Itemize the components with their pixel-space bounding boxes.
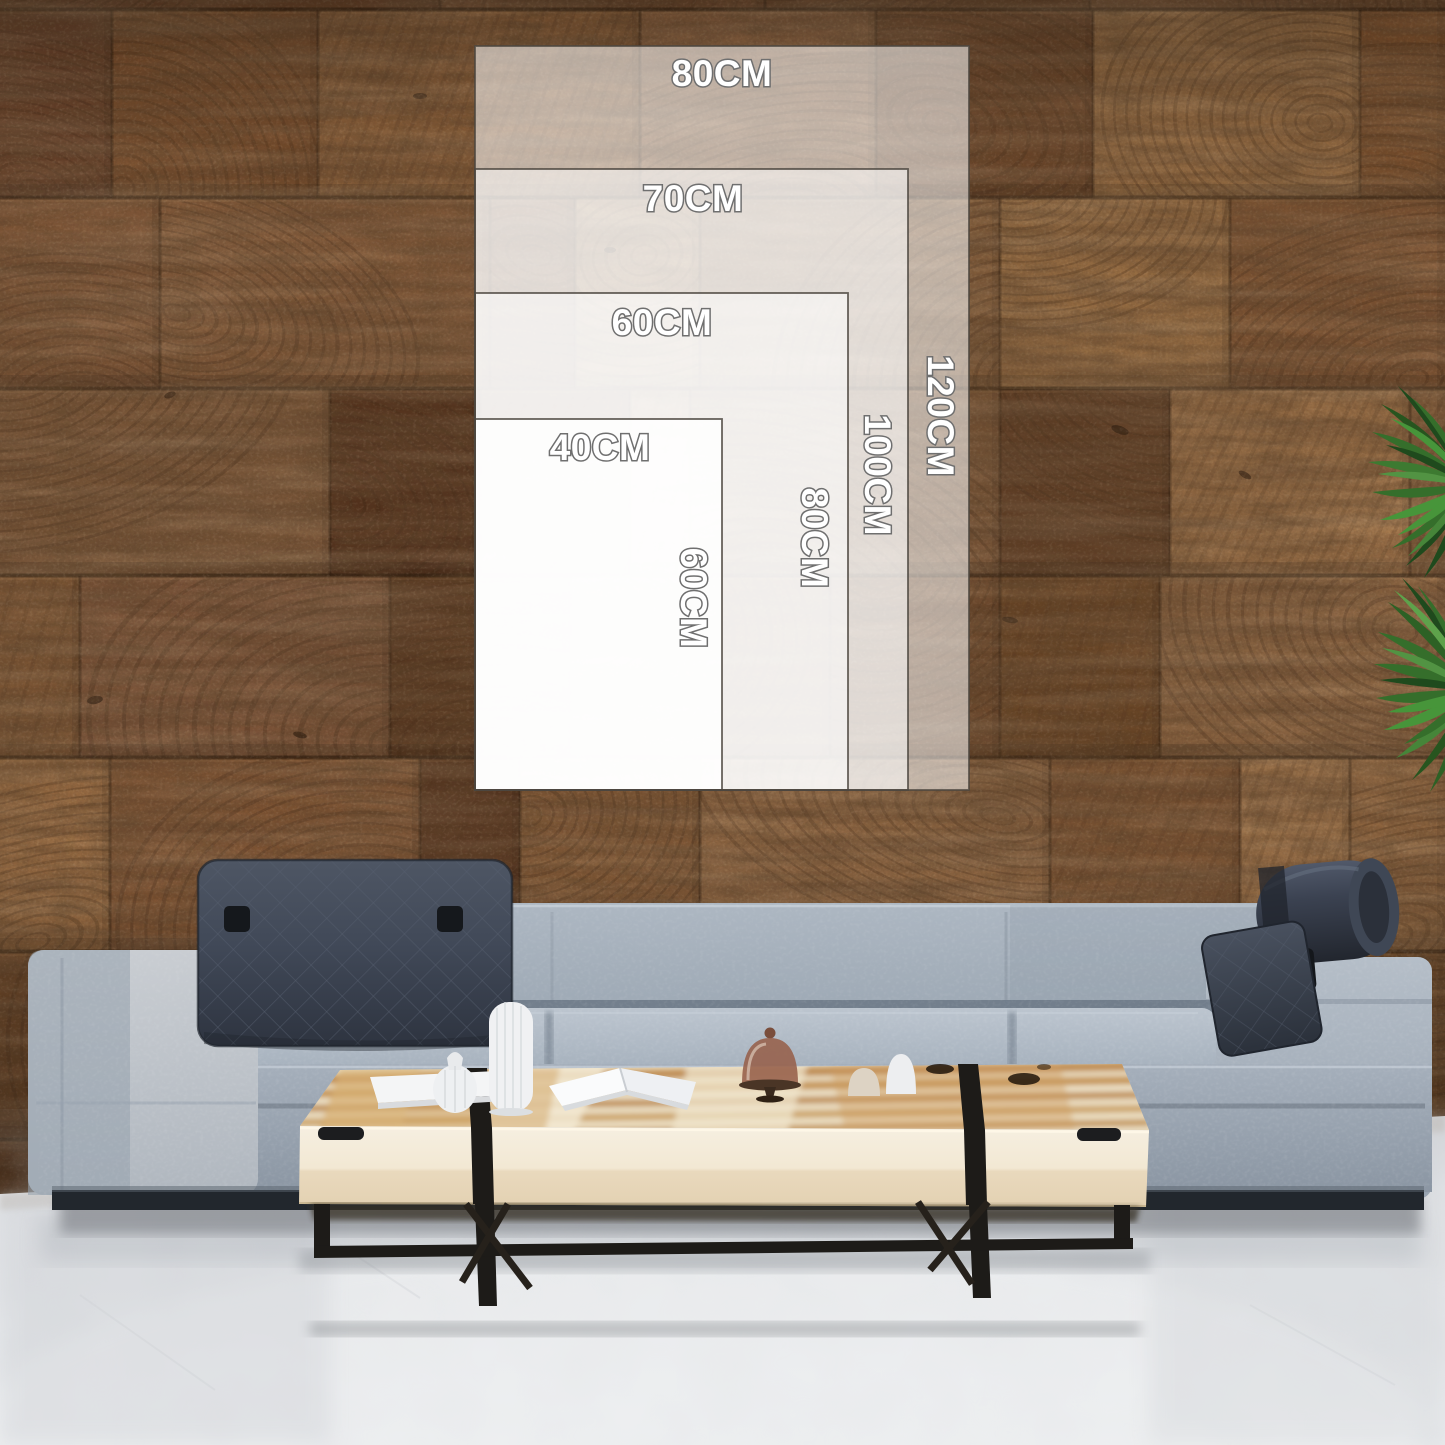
- svg-text:60CM: 60CM: [612, 302, 713, 343]
- svg-text:80CM: 80CM: [672, 53, 773, 94]
- svg-text:120CM: 120CM: [920, 355, 961, 477]
- svg-text:60CM: 60CM: [673, 548, 714, 649]
- svg-text:70CM: 70CM: [643, 178, 744, 219]
- svg-text:80CM: 80CM: [794, 488, 835, 589]
- svg-text:40CM: 40CM: [550, 427, 651, 468]
- svg-text:100CM: 100CM: [857, 414, 898, 536]
